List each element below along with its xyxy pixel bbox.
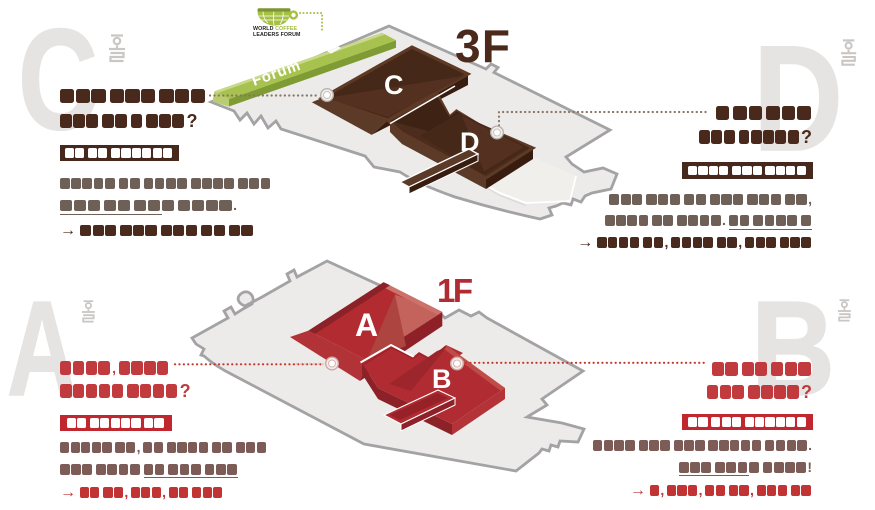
svg-text:B: B	[432, 364, 452, 394]
svg-text:C: C	[384, 70, 404, 100]
svg-text:A: A	[355, 307, 378, 343]
svg-text:C: C	[18, 0, 98, 160]
svg-text:B: B	[751, 273, 835, 424]
svg-text:WORLD COFFEE: WORLD COFFEE	[253, 26, 298, 32]
svg-text:LEADERS FORUM: LEADERS FORUM	[253, 32, 301, 38]
svg-text:D: D	[753, 14, 843, 182]
svg-text:A: A	[7, 273, 77, 424]
svg-text:1F: 1F	[437, 272, 473, 309]
svg-text:3F: 3F	[455, 20, 510, 72]
